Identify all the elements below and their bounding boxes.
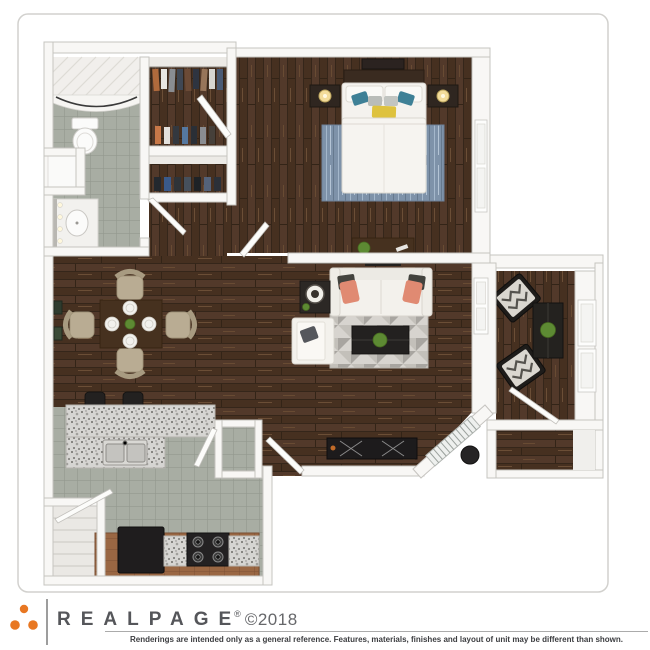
sofa <box>330 268 432 316</box>
breakfast-bar <box>66 405 215 437</box>
media-console <box>327 438 417 459</box>
refrigerator <box>118 527 164 573</box>
disclaimer-text: Renderings are intended only as a genera… <box>105 635 648 644</box>
vanity-mirror <box>53 199 57 247</box>
living-window <box>474 278 488 334</box>
chaise-chair <box>292 318 334 364</box>
copyright-year: ©2018 <box>245 610 298 629</box>
coffee-table <box>352 326 409 354</box>
patio-plant <box>541 323 556 338</box>
wall-art <box>362 59 404 69</box>
nightstand-left <box>310 85 340 107</box>
shower-ceiling <box>53 57 140 98</box>
hanging-clothes-bottom <box>155 126 215 144</box>
footer-rule <box>105 631 648 632</box>
floorplan-rendering <box>0 0 650 650</box>
patio-window <box>578 300 596 392</box>
nightstand-right <box>428 85 458 107</box>
headboard <box>344 70 424 83</box>
footer: REALPAGE®©2018 Renderings are intended o… <box>0 595 650 650</box>
bedroom-window <box>475 120 487 212</box>
brand-row: REALPAGE®©2018 <box>57 609 298 631</box>
storage-floor <box>496 430 573 470</box>
floorplan-page: © 2019 LeaseStar LLC. All rights reserve… <box>0 0 650 650</box>
bed <box>342 83 426 193</box>
patio-table <box>533 303 563 358</box>
stove <box>187 533 229 566</box>
realpage-wordmark: REALPAGE <box>57 609 241 630</box>
realpage-logo-mark <box>2 598 46 638</box>
gray-pillow <box>384 96 398 106</box>
table-centerpiece-plant <box>125 319 135 329</box>
grill <box>461 446 479 464</box>
logo-dot <box>20 605 28 613</box>
vanity <box>53 199 98 247</box>
shoe-row <box>154 177 221 191</box>
console-decor <box>331 446 336 451</box>
dresser-plant <box>358 242 370 254</box>
yellow-pillow <box>372 106 396 119</box>
gray-pillow <box>368 96 382 106</box>
logo-dot <box>28 620 38 630</box>
utility-closet-floor <box>222 427 255 471</box>
storage-platform <box>573 430 595 470</box>
double-sink <box>103 440 147 465</box>
bedroom-doorway-floor <box>227 205 236 253</box>
side-table-lamp <box>300 281 330 313</box>
hanging-clothes-top <box>152 69 223 92</box>
logo-dot <box>10 620 20 630</box>
registered-mark: ® <box>234 609 241 619</box>
linen-closet <box>48 155 79 188</box>
footer-divider <box>46 599 48 645</box>
